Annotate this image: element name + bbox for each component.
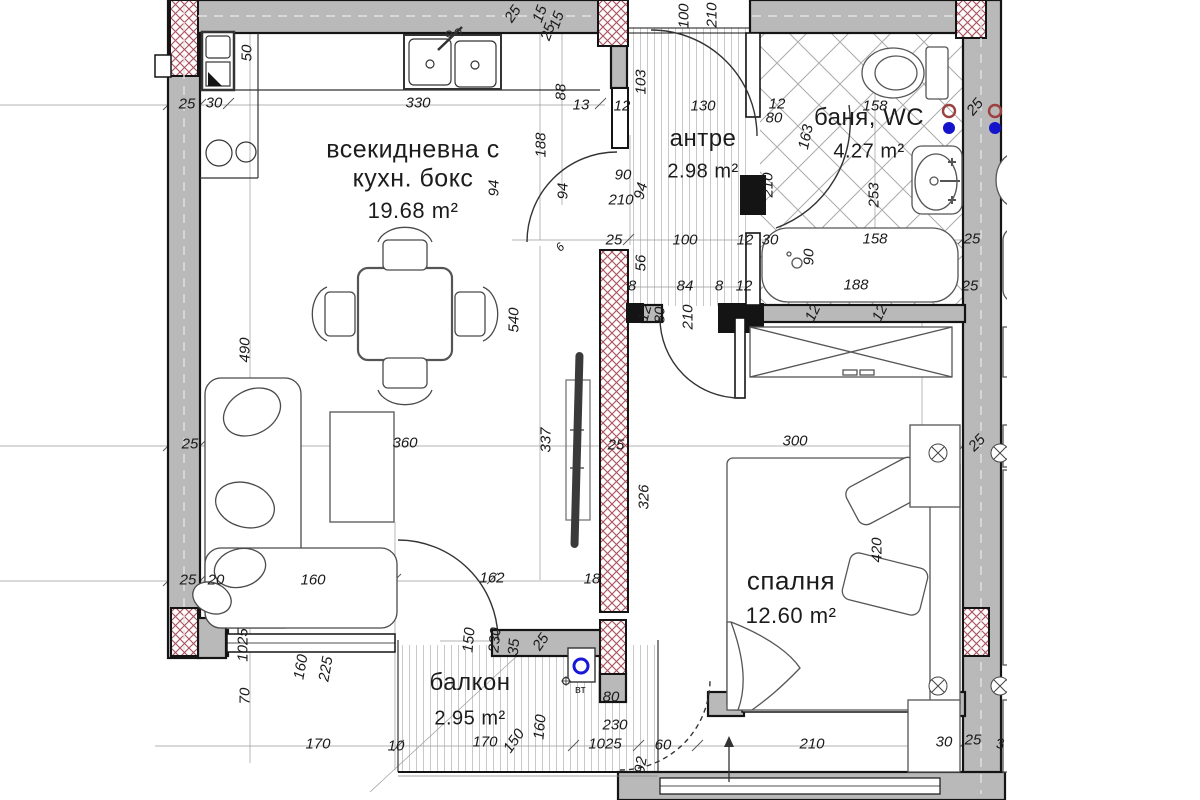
coffee-table [330,412,394,522]
nightstand [908,700,960,772]
entrance-door-leaf [612,88,628,148]
floor-plan-page: вт 5025303302515251588131210313010021018… [0,0,1200,800]
stove-burner [206,140,232,166]
mirror-bed [1003,470,1007,665]
mirror-nightstand [1003,700,1007,772]
stove-burner [236,142,256,162]
nightstand [910,425,960,507]
hall-floor [630,28,746,306]
kitchen-sink [404,35,501,89]
bathtub [762,228,958,302]
top-wall-bath [750,0,972,33]
partition-foot [600,672,626,702]
chair [455,292,485,336]
bedroom-north-wall [740,305,965,322]
tv [570,352,583,548]
plumbing-cold-icon [989,122,1001,134]
hall-south-wall [642,305,662,322]
dining-table [358,268,452,360]
mirror-bathtub [1003,228,1007,302]
toilet-tank [926,47,948,99]
floor-plan-drawing [0,0,1007,800]
living-door-arc [527,152,617,242]
balcony-door-arc [398,540,498,640]
mirror-wardrobe [1003,327,1007,377]
chair [325,292,355,336]
bedroom-door-leaf [735,318,745,398]
fridge [202,32,234,90]
bedroom-furniture [727,327,960,772]
chair [383,358,427,388]
living-bedroom-partition [600,250,628,612]
entrance-jamb [611,46,627,88]
vt-outlet-icon [574,659,588,673]
chair [383,240,427,270]
living-furniture [188,227,590,628]
plumbing-cold-icon [943,122,955,134]
